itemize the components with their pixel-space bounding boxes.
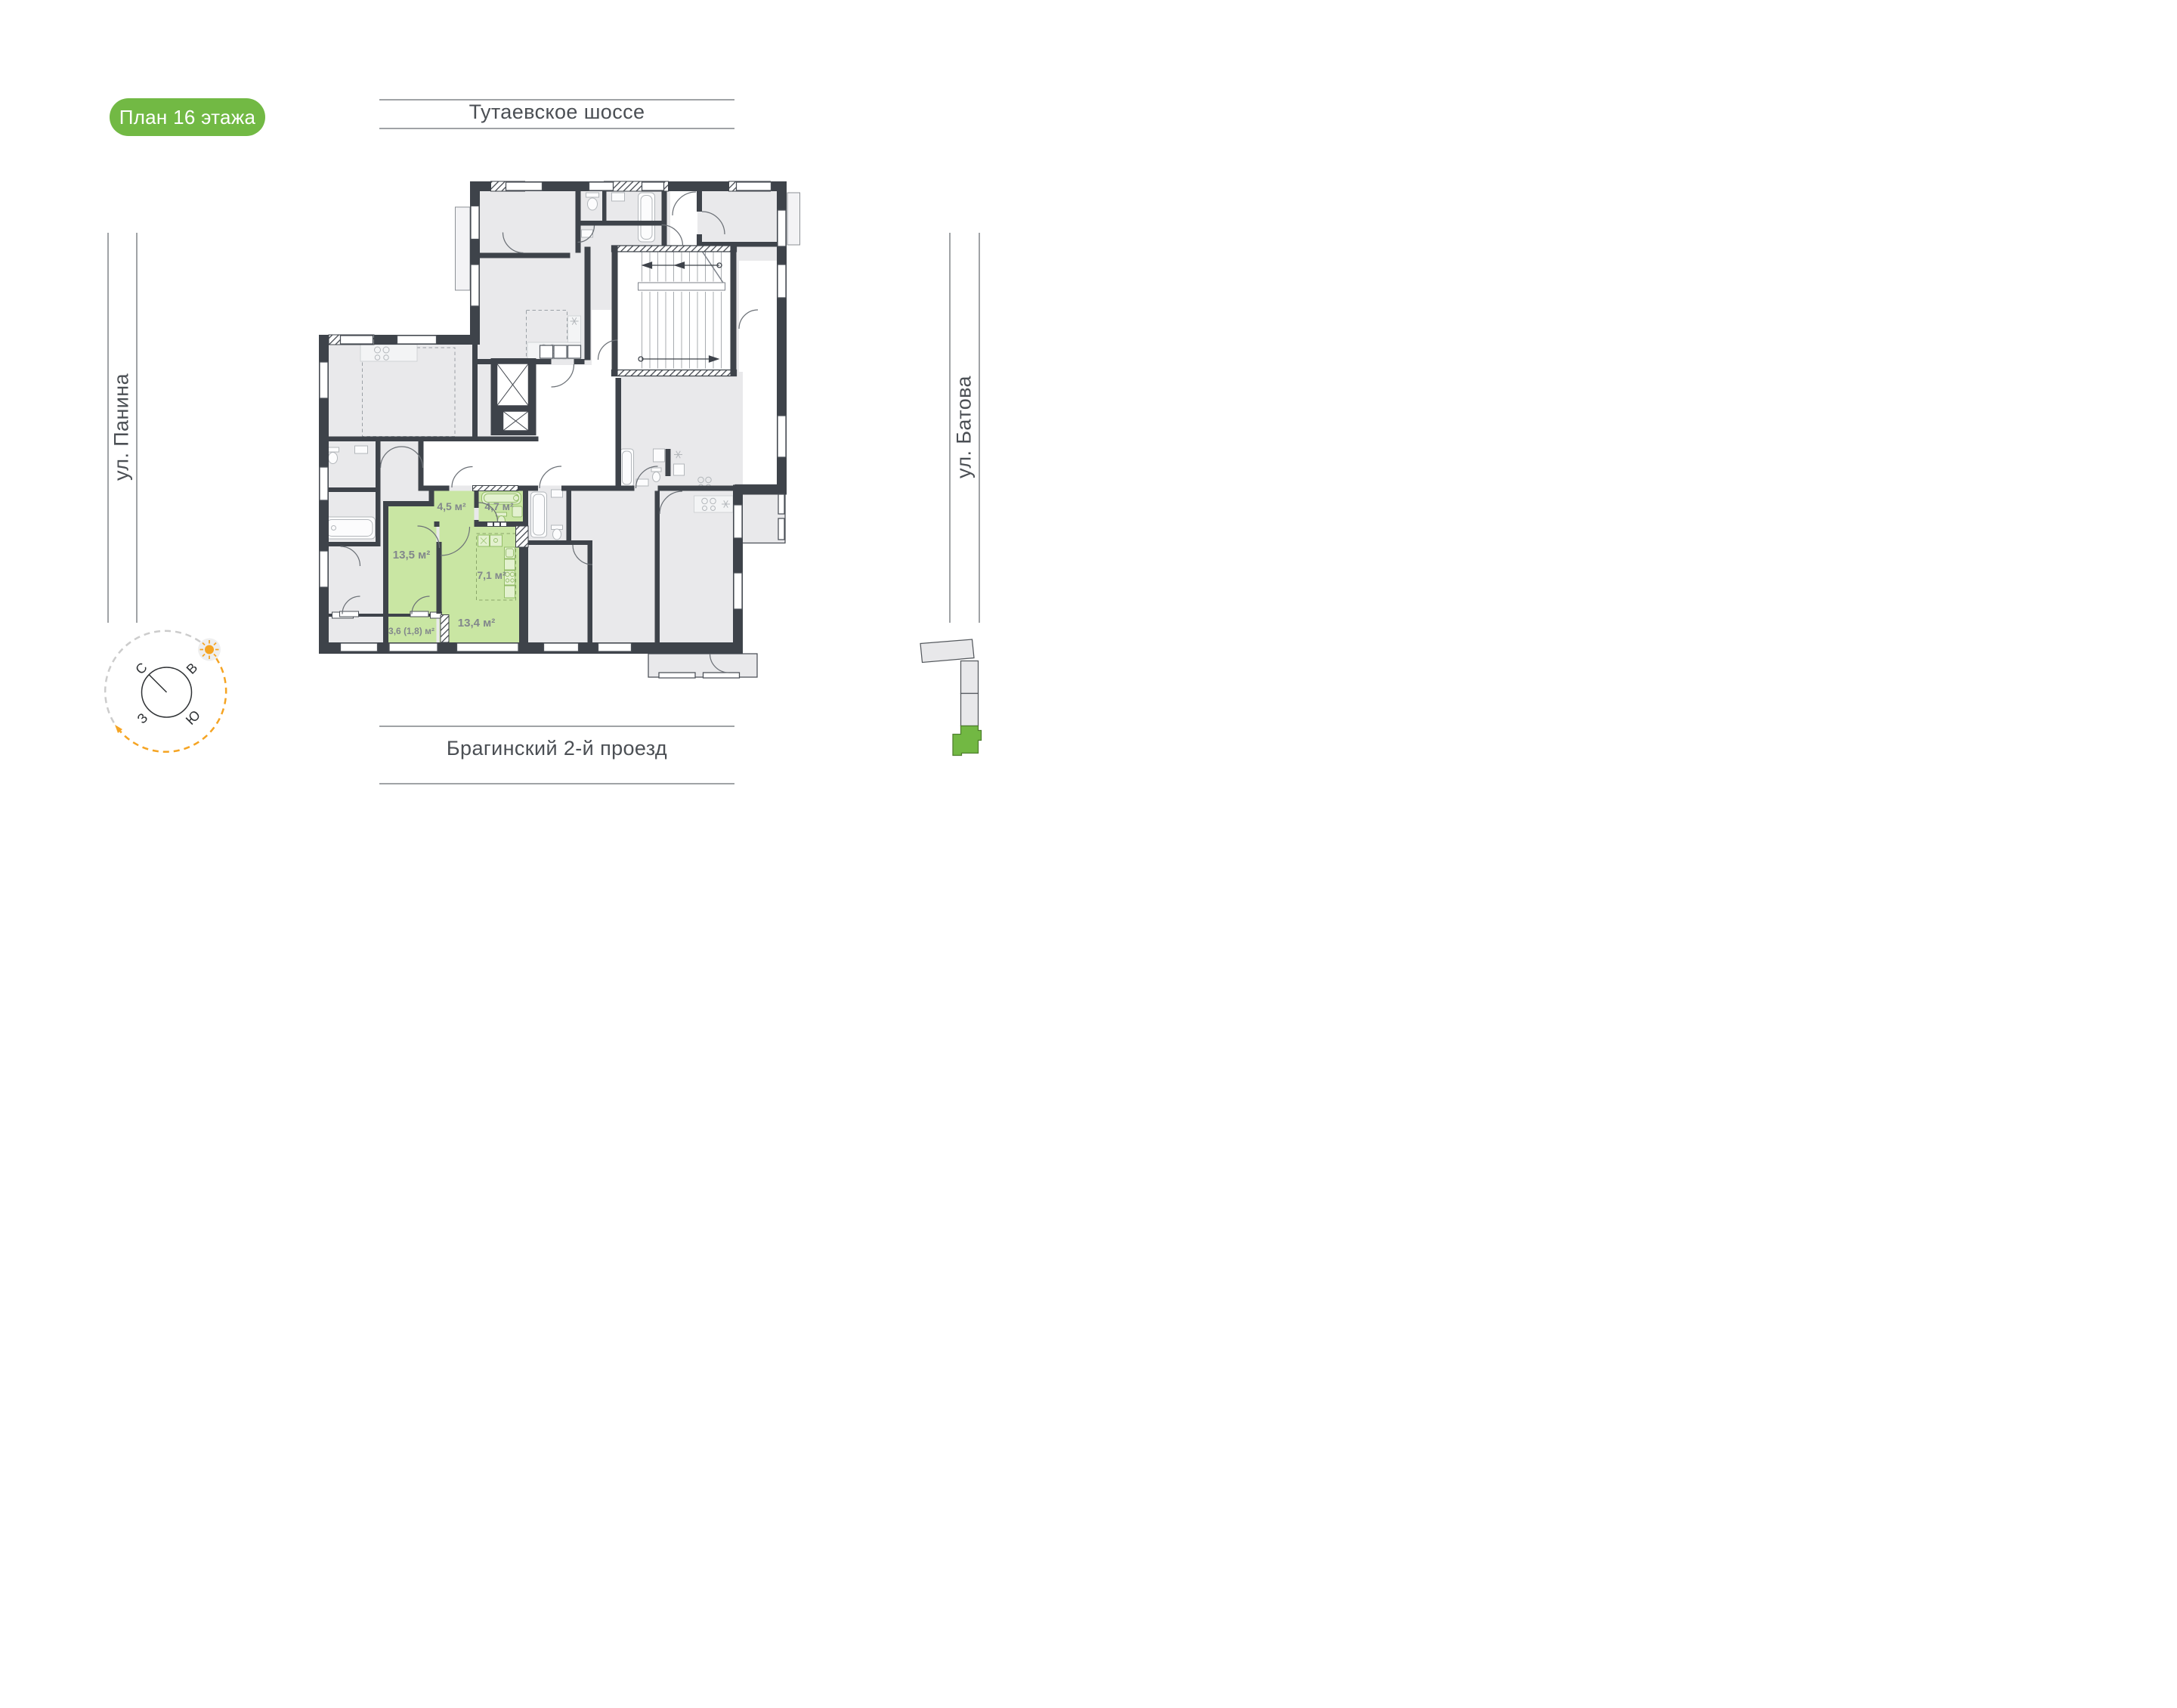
- room-area-label: 4,7 м²: [484, 500, 514, 512]
- street-label-left: ул. Панина: [110, 373, 134, 481]
- street-line-right-1: [949, 233, 951, 623]
- compass-south: Ю: [183, 707, 203, 728]
- street-line-left-2: [136, 233, 138, 623]
- street-label-bottom: Брагинский 2-й проезд: [379, 737, 734, 760]
- sink: [512, 506, 522, 517]
- street-line-right-2: [979, 233, 980, 623]
- room-area-label: 4,5 м²: [437, 500, 466, 512]
- minimap-section-mid1: [961, 661, 979, 694]
- compass-east: В: [184, 660, 201, 677]
- sun-icon: [198, 639, 221, 661]
- room-area-label: 3,6 (1,8) м²: [388, 626, 434, 636]
- neighbor-balcony: [322, 611, 384, 642]
- street-label-right: ул. Батова: [953, 376, 976, 478]
- balcony-wing-right: [787, 193, 800, 245]
- room-area-label: 13,4 м²: [458, 617, 495, 630]
- stairwell: [612, 246, 737, 376]
- street-line-bottom-1: [379, 726, 734, 727]
- room-area-label: 13,5 м²: [393, 549, 430, 562]
- compass: С В Ю З: [98, 616, 242, 760]
- minimap-section-mid2: [961, 694, 979, 726]
- page: План 16 этажа Тутаевское шоссе Брагински…: [0, 0, 1089, 854]
- street-line-left-1: [107, 233, 109, 623]
- highlighted-apartment[interactable]: 4,5 м² 4,7 м² 13,5 м² 7,1 м² 13,4 м² 3,6…: [383, 486, 528, 643]
- building-minimap: [910, 635, 985, 760]
- room-area-label: 7,1 м²: [477, 569, 506, 581]
- balcony-wing-left: [456, 207, 471, 290]
- compass-north: С: [132, 660, 150, 677]
- elevators: [491, 358, 537, 435]
- minimap-section-top: [920, 639, 974, 663]
- compass-west: З: [135, 710, 151, 727]
- floor-plan: 4,5 м² 4,7 м² 13,5 м² 7,1 м² 13,4 м² 3,6…: [315, 178, 806, 680]
- minimap-section-highlighted[interactable]: [953, 726, 982, 756]
- street-label-top: Тутаевское шоссе: [379, 101, 734, 124]
- kitchen-cabinet: [490, 535, 503, 546]
- floor-badge: План 16 этажа: [110, 98, 265, 136]
- street-line-bottom-2: [379, 783, 734, 784]
- street-line-top-2: [379, 128, 734, 129]
